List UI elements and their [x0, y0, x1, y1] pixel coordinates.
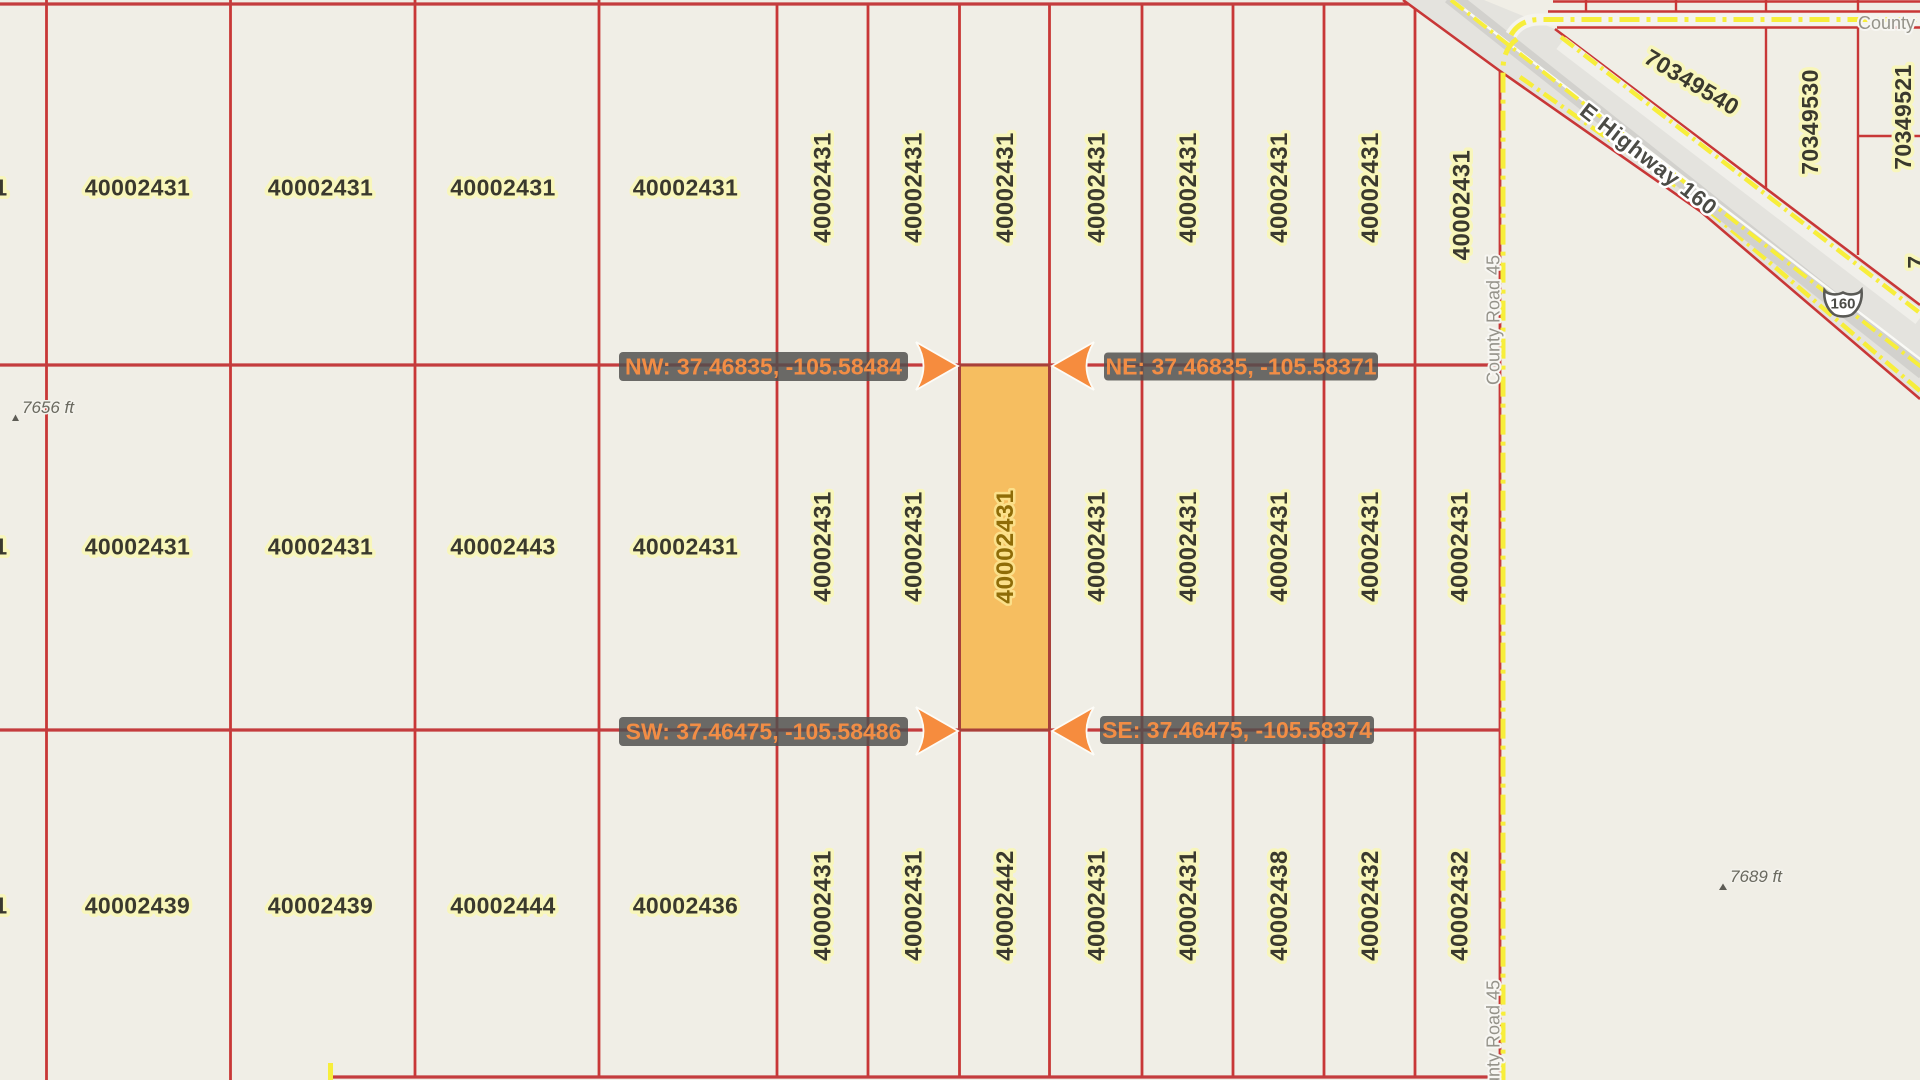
svg-text:40002431: 40002431	[1448, 150, 1475, 261]
svg-text:40002431: 40002431	[809, 132, 836, 243]
svg-text:SE: 37.46475, -105.58374: SE: 37.46475, -105.58374	[1102, 717, 1372, 743]
svg-text:40002443: 40002443	[450, 534, 556, 560]
svg-text:40002431: 40002431	[1266, 491, 1293, 602]
svg-text:40002431: 40002431	[1083, 850, 1110, 961]
svg-text:40002431: 40002431	[268, 175, 374, 201]
svg-text:40002439: 40002439	[268, 893, 374, 919]
svg-text:160: 160	[1830, 296, 1855, 313]
svg-text:40002431: 40002431	[1357, 132, 1384, 243]
svg-text:40002431: 40002431	[1175, 132, 1202, 243]
svg-text:NE: 37.46835, -105.58371: NE: 37.46835, -105.58371	[1105, 354, 1376, 380]
svg-text:40002431: 40002431	[1175, 850, 1202, 961]
svg-text:70349521: 70349521	[1890, 64, 1916, 170]
svg-text:40002431: 40002431	[633, 175, 739, 201]
svg-text:7: 7	[1903, 255, 1920, 268]
svg-text:40002432: 40002432	[1446, 850, 1473, 961]
svg-text:40002431: 40002431	[1083, 491, 1110, 602]
svg-text:40002431: 40002431	[85, 175, 191, 201]
svg-text:40002431: 40002431	[1357, 491, 1384, 602]
svg-text:7656 ft: 7656 ft	[22, 398, 75, 417]
svg-text:40002431: 40002431	[900, 491, 927, 602]
svg-text:40002436: 40002436	[633, 893, 739, 919]
svg-text:40002431: 40002431	[450, 175, 556, 201]
svg-text:40002431: 40002431	[1446, 491, 1473, 602]
svg-text:40002431: 40002431	[809, 491, 836, 602]
svg-text:40002431: 40002431	[900, 850, 927, 961]
svg-text:1: 1	[0, 534, 8, 560]
svg-text:40002432: 40002432	[1357, 850, 1384, 961]
svg-text:1: 1	[0, 893, 8, 919]
svg-text:County Road 45: County Road 45	[1484, 980, 1504, 1080]
svg-text:1: 1	[0, 175, 8, 201]
svg-text:40002442: 40002442	[992, 850, 1019, 961]
svg-text:County: County	[1858, 13, 1915, 33]
svg-text:40002431: 40002431	[900, 132, 927, 243]
svg-text:7689 ft: 7689 ft	[1730, 867, 1783, 886]
svg-text:40002439: 40002439	[85, 893, 191, 919]
svg-text:40002444: 40002444	[450, 893, 556, 919]
svg-text:SW: 37.46475, -105.58486: SW: 37.46475, -105.58486	[626, 719, 902, 745]
svg-text:40002431: 40002431	[268, 534, 374, 560]
svg-text:NW: 37.46835, -105.58484: NW: 37.46835, -105.58484	[625, 354, 902, 380]
svg-text:70349530: 70349530	[1797, 69, 1823, 175]
svg-text:40002431: 40002431	[85, 534, 191, 560]
svg-text:40002431: 40002431	[992, 132, 1019, 243]
svg-text:40002431: 40002431	[1175, 491, 1202, 602]
svg-text:40002431: 40002431	[992, 489, 1019, 604]
svg-text:40002431: 40002431	[1083, 132, 1110, 243]
svg-text:County Road 45: County Road 45	[1484, 255, 1504, 385]
svg-text:40002438: 40002438	[1266, 850, 1293, 961]
svg-text:40002431: 40002431	[1266, 132, 1293, 243]
svg-text:40002431: 40002431	[633, 534, 739, 560]
svg-text:40002431: 40002431	[809, 850, 836, 961]
